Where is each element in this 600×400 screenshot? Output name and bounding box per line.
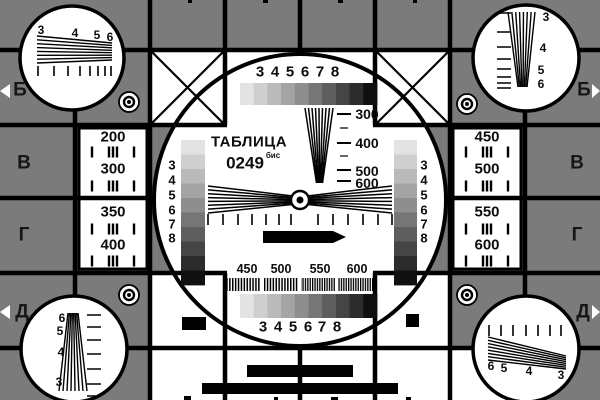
corner-number: 5 (57, 325, 64, 337)
right-strip-number: 7 (420, 218, 427, 231)
bottom-freq-label: 550 (310, 263, 331, 276)
right-strip-number: 8 (420, 232, 427, 245)
bottom-freq-label: 450 (237, 263, 258, 276)
corner-number: 4 (58, 346, 65, 358)
left-panel-value: 350 (100, 205, 125, 220)
bottom-freq-label: 600 (347, 263, 368, 276)
corner-number: 4 (540, 42, 547, 54)
corner-circle-bottom-right (473, 296, 579, 400)
bottom-row-bar-short (247, 365, 353, 377)
row-letter-right: В (570, 154, 584, 173)
corner-number: 6 (488, 360, 495, 372)
bottom-scale-number: 5 (289, 320, 297, 335)
bottom-scale-number: 3 (259, 320, 267, 335)
right-panel-value: 550 (474, 205, 499, 220)
row-letter-left: В (17, 154, 31, 173)
bottom-scale-number: 6 (304, 320, 312, 335)
top-scale-number: 5 (286, 65, 294, 80)
row-letter-right: Г (572, 226, 583, 245)
left-strip-number: 4 (168, 174, 175, 187)
center-target-icon (291, 191, 309, 209)
corner-number: 3 (558, 369, 565, 381)
left-panel-value: 300 (100, 162, 125, 177)
row-letter-right: Д (576, 303, 590, 322)
row-letter-left: Г (19, 226, 30, 245)
registration-target-icon (119, 285, 139, 305)
bottom-row-bar-long (202, 383, 398, 394)
row-letter-right: Б (577, 81, 591, 100)
registration-target-icon (457, 285, 477, 305)
right-panel-value: 600 (474, 238, 499, 253)
bottom-scale-number: 4 (274, 320, 282, 335)
corner-number: 5 (501, 362, 508, 374)
left-strip-number: 7 (168, 218, 175, 231)
corner-number: 6 (538, 78, 545, 90)
row-letter-left: Б (13, 81, 27, 100)
left-strip-number: 6 (168, 204, 175, 217)
bottom-scale-number: 7 (318, 320, 326, 335)
left-strip-number: 5 (168, 189, 175, 202)
corner-number: 4 (526, 365, 533, 377)
right-strip-number: 3 (420, 159, 427, 172)
right-strip-number: 6 (420, 204, 427, 217)
corner-number: 6 (59, 312, 66, 324)
center-wedge-label: 300 (355, 107, 378, 121)
left-grayscale-strip (181, 140, 205, 285)
top-grayscale-strip (240, 83, 377, 105)
card-code-suffix: бис (266, 152, 280, 160)
top-scale-number: 8 (331, 65, 339, 80)
registration-target-icon (119, 92, 139, 112)
center-wedge-label: 400 (355, 136, 378, 150)
right-strip-number: 5 (420, 189, 427, 202)
top-scale-number: 4 (271, 65, 279, 80)
right-strip-number: 4 (420, 174, 427, 187)
top-scale-number: 7 (316, 65, 324, 80)
card-code: 0249 (226, 155, 264, 172)
frequency-burst-strip (227, 278, 375, 291)
test-card-graphics (0, 0, 600, 400)
right-panel-value: 500 (474, 162, 499, 177)
right-flank-black-rect (406, 314, 419, 327)
corner-number: 5 (94, 29, 101, 41)
bottom-scale-number: 8 (333, 320, 341, 335)
top-scale-number: 6 (301, 65, 309, 80)
corner-number: 3 (543, 11, 550, 23)
left-strip-number: 3 (168, 159, 175, 172)
registration-target-icon (457, 94, 477, 114)
corner-number: 6 (107, 31, 114, 43)
test-card: ТАБЛИЦА 0249 бис 3 4 5 6 7 8 3 4 5 6 7 8… (0, 0, 600, 400)
corner-number: 4 (72, 27, 79, 39)
corner-number: 5 (538, 64, 545, 76)
corner-number: 3 (38, 24, 45, 36)
bottom-grayscale-strip (240, 294, 377, 318)
top-scale-number: 3 (256, 65, 264, 80)
left-strip-number: 8 (168, 232, 175, 245)
center-black-bar (263, 231, 346, 243)
card-title: ТАБЛИЦА (211, 135, 287, 150)
left-panel-value: 400 (100, 238, 125, 253)
left-flank-black-rect (182, 317, 206, 330)
left-panel-value: 200 (100, 130, 125, 145)
corner-number: 3 (56, 376, 63, 388)
row-letter-left: Д (15, 303, 29, 322)
right-grayscale-strip (394, 140, 417, 285)
center-wedge-label: 600 (355, 176, 378, 190)
bottom-freq-label: 500 (271, 263, 292, 276)
right-panel-value: 450 (474, 130, 499, 145)
